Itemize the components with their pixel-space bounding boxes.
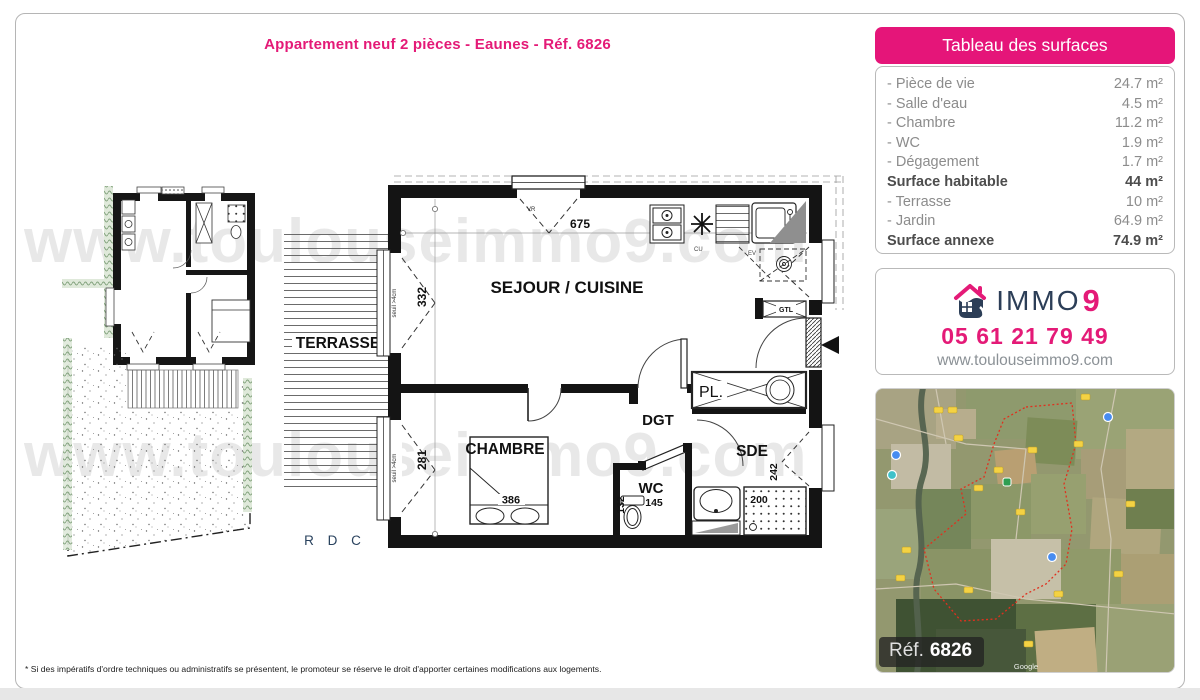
chambre-label: CHAMBRE <box>465 441 544 458</box>
row-value: 74.9 m² <box>1113 232 1163 252</box>
wc-label: WC <box>639 480 664 497</box>
dim-242: 242 <box>768 463 780 481</box>
row-label: Surface annexe <box>887 232 994 252</box>
row-label: - Salle d'eau <box>887 95 967 115</box>
house-icon <box>950 281 992 321</box>
pl-label: PL. <box>699 384 723 401</box>
table-row: - Chambre11.2 m² <box>887 114 1163 134</box>
dim-200: 200 <box>750 494 768 506</box>
sde-label: SDE <box>736 443 768 460</box>
main-plan: VR seuil >4cm seuil >4cm <box>377 176 839 548</box>
table-row: - Terrasse10 m² <box>887 193 1163 213</box>
dgt-label: DGT <box>642 412 674 429</box>
row-label: - Chambre <box>887 114 956 134</box>
table-row: - Dégagement1.7 m² <box>887 153 1163 173</box>
gtl-label: GTL <box>779 307 794 314</box>
row-label: - Jardin <box>887 212 935 232</box>
row-value: 1.7 m² <box>1122 153 1163 173</box>
entrance-door <box>806 318 821 367</box>
row-value: 44 m² <box>1125 173 1163 193</box>
agency-logo: IMMO9 <box>876 281 1174 321</box>
satellite-map: Google <box>876 389 1175 673</box>
row-label: - Dégagement <box>887 153 979 173</box>
row-label: Surface habitable <box>887 173 1008 193</box>
ref-label: Réf. <box>889 640 924 661</box>
mini-plan <box>62 186 255 370</box>
table-row: - Jardin64.9 m² <box>887 212 1163 232</box>
footnote: * Si des impératifs d'ordre techniques o… <box>25 664 925 674</box>
table-row: - Pièce de vie24.7 m² <box>887 75 1163 95</box>
map-attribution: Google <box>1014 662 1038 671</box>
sejour-label: SEJOUR / CUISINE <box>490 278 643 297</box>
row-value: 10 m² <box>1126 193 1163 213</box>
seuil-note-sejour: seuil >4cm <box>392 289 398 318</box>
table-row-total-habitable: Surface habitable44 m² <box>887 173 1163 193</box>
terrasse-label: TERRASSE <box>296 335 380 352</box>
dim-332: 332 <box>415 287 429 307</box>
agency-contact-card: IMMO9 05 61 21 79 49 www.toulouseimmo9.c… <box>875 268 1175 375</box>
seuil-note-chambre: seuil >4cm <box>392 454 398 483</box>
row-label: - Terrasse <box>887 193 951 213</box>
row-label: - Pièce de vie <box>887 75 975 95</box>
agency-website: www.toulouseimmo9.com <box>876 352 1174 370</box>
hedge-right <box>243 378 252 512</box>
ref-number: 6826 <box>930 640 972 661</box>
map-ref-badge: Réf.6826 <box>879 637 984 667</box>
cu-label: CU <box>694 247 703 253</box>
kitchen: CU EV <box>650 201 806 281</box>
brand-immo-text: IMMO <box>996 285 1080 317</box>
entrance-arrow <box>821 336 839 354</box>
row-value: 4.5 m² <box>1122 95 1163 115</box>
ev-label: EV <box>748 251 756 257</box>
table-row-total-annexe: Surface annexe74.9 m² <box>887 232 1163 252</box>
map-container[interactable]: Google Réf.6826 <box>875 388 1175 673</box>
row-label: - WC <box>887 134 920 154</box>
dim-675: 675 <box>570 217 590 231</box>
table-row: - WC1.9 m² <box>887 134 1163 154</box>
window-right <box>822 240 834 303</box>
surfaces-header: Tableau des surfaces <box>875 27 1175 64</box>
surfaces-table: - Pièce de vie24.7 m² - Salle d'eau4.5 m… <box>875 66 1175 254</box>
agency-phone: 05 61 21 79 49 <box>876 323 1174 350</box>
dim-132: 132 <box>615 496 627 514</box>
dim-281: 281 <box>415 450 429 470</box>
dim-145: 145 <box>645 497 663 509</box>
terrace: TERRASSE <box>284 229 388 493</box>
row-value: 11.2 m² <box>1115 114 1163 134</box>
dim-386: 386 <box>502 495 520 507</box>
mini-terrace <box>128 370 238 408</box>
row-value: 1.9 m² <box>1122 134 1163 154</box>
row-value: 64.9 m² <box>1114 212 1163 232</box>
window-sde <box>822 425 834 491</box>
placard: PL. <box>692 372 806 408</box>
table-row: - Salle d'eau4.5 m² <box>887 95 1163 115</box>
vanity <box>692 487 740 535</box>
floor-label: R D C <box>304 533 366 548</box>
vr-label: VR <box>527 207 536 213</box>
brand-nine-text: 9 <box>1082 283 1099 319</box>
row-value: 24.7 m² <box>1114 75 1163 95</box>
